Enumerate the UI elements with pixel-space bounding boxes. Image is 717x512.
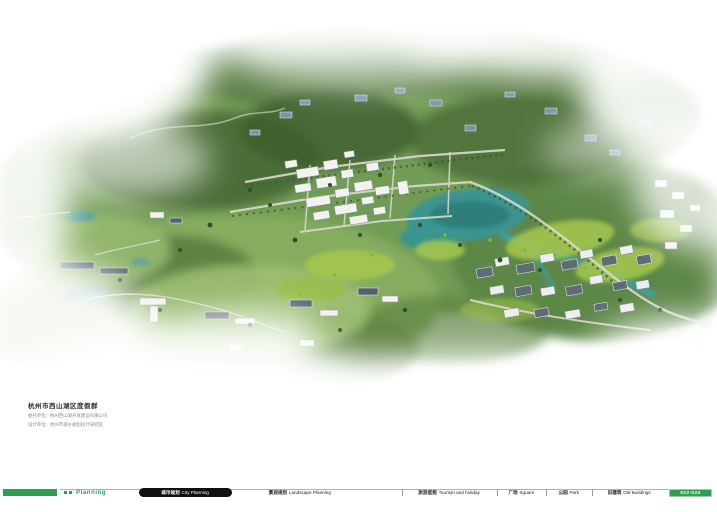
series-label: Planning [76, 490, 106, 496]
tab-label-en: Landscape Planning [289, 489, 331, 494]
tab-label-zh: 广场 [509, 489, 518, 495]
tab-old-buildings[interactable]: 旧建筑 Old Buildings [592, 488, 667, 497]
series-label-group: Planning [64, 488, 106, 497]
tab-label-zh: 景观规划 [269, 489, 288, 495]
active-tab-label-zh: 城市规划 [162, 489, 181, 495]
tab-landscape-planning[interactable]: 景观规划 Landscape Planning [240, 488, 360, 497]
portfolio-page: 杭州市西山湖区度假群 委托单位：杭州西山湖开发建设有限公司 设计单位：杭州市城乡… [0, 0, 717, 512]
footer-index-bar: Planning 城市规划 City Planning 景观规划 Landsca… [0, 486, 717, 500]
credit-line-designer: 设计单位：杭州市城乡规划设计研究院 [28, 422, 107, 427]
tab-label-en: Park [570, 489, 580, 494]
masterplan-aerial-rendering [0, 0, 717, 512]
footer-green-block [3, 489, 57, 496]
credits: 委托单位：杭州西山湖开发建设有限公司 设计单位：杭州市城乡规划设计研究院 [28, 413, 172, 431]
tab-tourism-holiday[interactable]: 旅游度假 Tourism and holiday [402, 488, 497, 497]
page-number: 022-023 [680, 490, 700, 496]
tab-label-en: Old Buildings [624, 489, 651, 494]
tab-label-en: Square [520, 489, 535, 494]
page-title: 杭州市西山湖区度假群 [28, 400, 172, 410]
tab-label-en: Tourism and holiday [439, 489, 480, 494]
tab-city-planning-active[interactable]: 城市规划 City Planning [139, 488, 232, 497]
green-square-icon [64, 491, 67, 494]
tab-square[interactable]: 广场 Square [497, 488, 546, 497]
tab-label-zh: 旧建筑 [608, 489, 622, 495]
credit-line-client: 委托单位：杭州西山湖开发建设有限公司 [28, 413, 107, 418]
active-tab-label-en: City Planning [182, 489, 209, 494]
title-block: 杭州市西山湖区度假群 委托单位：杭州西山湖开发建设有限公司 设计单位：杭州市城乡… [28, 400, 172, 431]
tab-label-zh: 公园 [559, 489, 568, 495]
tab-park[interactable]: 公园 Park [546, 488, 592, 497]
page-number-pill: 022-023 [669, 489, 712, 497]
tab-label-zh: 旅游度假 [419, 489, 438, 495]
green-square-icon [69, 491, 72, 494]
